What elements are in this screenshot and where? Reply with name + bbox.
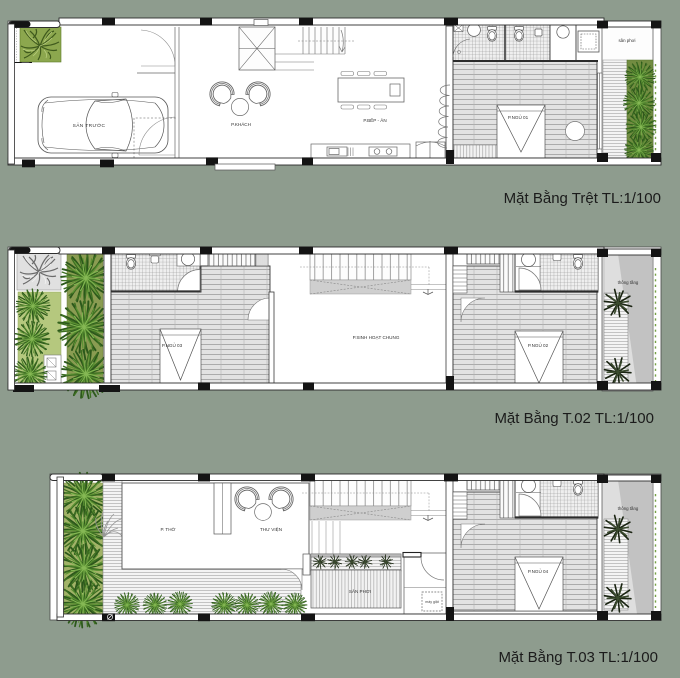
svg-text:thông tầng: thông tầng — [618, 280, 639, 285]
svg-text:P.NGỦ 01: P.NGỦ 01 — [508, 114, 529, 120]
svg-text:Mặt Bằng T.02 TL:1/100: Mặt Bằng T.02 TL:1/100 — [494, 410, 654, 427]
svg-text:máy giặt: máy giặt — [425, 600, 439, 604]
svg-text:SÂN PHƠI: SÂN PHƠI — [349, 588, 371, 594]
svg-text:thông tầng: thông tầng — [618, 506, 639, 511]
svg-text:THƯ VIỆN: THƯ VIỆN — [260, 525, 282, 532]
svg-text:P. THỜ: P. THỜ — [160, 526, 175, 532]
svg-text:P.BẾP - ĂN: P.BẾP - ĂN — [363, 117, 386, 123]
svg-text:P.NGỦ 03: P.NGỦ 03 — [162, 342, 183, 348]
svg-text:P.SINH HOẠT CHUNG: P.SINH HOẠT CHUNG — [353, 335, 400, 340]
svg-text:P.NGỦ 04: P.NGỦ 04 — [528, 568, 549, 574]
svg-text:sân phơi: sân phơi — [618, 38, 635, 43]
svg-text:P.NGỦ 02: P.NGỦ 02 — [528, 342, 549, 348]
svg-text:SẢN TRƯỚC: SẢN TRƯỚC — [73, 122, 106, 129]
svg-text:P.KHÁCH: P.KHÁCH — [231, 121, 251, 127]
svg-text:Mặt Bằng T.03 TL:1/100: Mặt Bằng T.03 TL:1/100 — [498, 649, 658, 666]
svg-text:Mặt Bằng Trệt TL:1/100: Mặt Bằng Trệt TL:1/100 — [504, 190, 661, 207]
